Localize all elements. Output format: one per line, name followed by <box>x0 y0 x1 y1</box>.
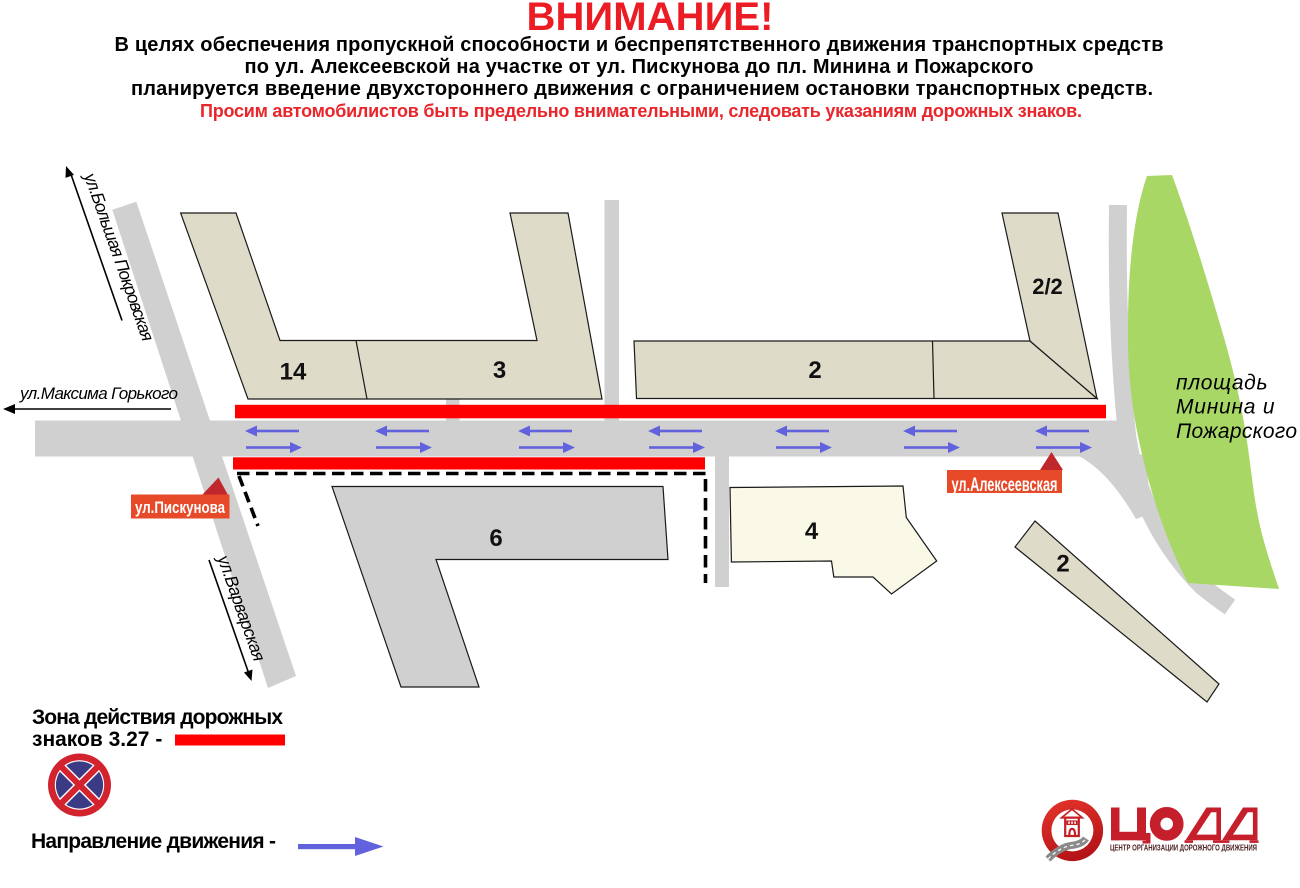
svg-text:Направление движения -: Направление движения - <box>31 830 276 853</box>
svg-text:ул.Алексеевская: ул.Алексеевская <box>952 475 1058 496</box>
svg-text:ул.Максима Горького: ул.Максима Горького <box>19 384 178 403</box>
svg-text:14: 14 <box>280 359 307 386</box>
svg-text:3: 3 <box>493 357 506 384</box>
svg-text:6: 6 <box>489 525 502 552</box>
svg-text:планируется введение двухсторо: планируется введение двухстороннего движ… <box>131 78 1153 100</box>
svg-text:2/2: 2/2 <box>1032 274 1063 299</box>
svg-text:Пожарского: Пожарского <box>1176 420 1297 443</box>
svg-text:площадь: площадь <box>1176 372 1268 395</box>
svg-text:2: 2 <box>1056 551 1069 578</box>
svg-text:2: 2 <box>808 357 821 384</box>
svg-text:Просим автомобилистов быть пре: Просим автомобилистов быть предельно вни… <box>200 101 1082 121</box>
svg-text:по ул. Алексеевской на участке: по ул. Алексеевской на участке от ул. Пи… <box>245 56 1034 78</box>
svg-text:4: 4 <box>805 518 819 545</box>
svg-text:Минина и: Минина и <box>1176 396 1275 419</box>
svg-text:Зона действия дорожных: Зона действия дорожных <box>32 706 283 729</box>
svg-text:знаков 3.27 -: знаков 3.27 - <box>32 728 162 751</box>
svg-text:ул.Пискунова: ул.Пискунова <box>135 498 225 517</box>
svg-text:В целях обеспечения пропускной: В целях обеспечения пропускной способнос… <box>115 34 1164 56</box>
svg-text:ЦЕНТР ОРГАНИЗАЦИИ ДОРОЖНОГО ДВ: ЦЕНТР ОРГАНИЗАЦИИ ДОРОЖНОГО ДВИЖЕНИЯ <box>1110 843 1257 853</box>
